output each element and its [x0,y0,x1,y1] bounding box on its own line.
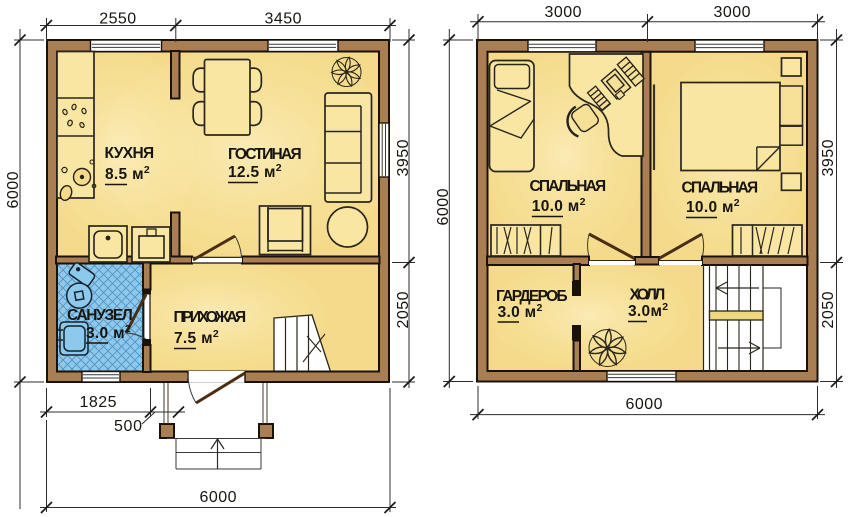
svg-text:500: 500 [114,418,142,435]
svg-text:3450: 3450 [265,11,302,28]
svg-text:6000: 6000 [5,171,22,208]
svg-text:ХОЛЛ: ХОЛЛ [630,287,666,304]
svg-text:СПАЛЬНАЯ: СПАЛЬНАЯ [530,178,607,195]
svg-text:7.5 м2: 7.5 м2 [174,328,219,347]
svg-text:САНУЗЕЛ: САНУЗЕЛ [67,307,133,324]
svg-text:2050: 2050 [820,291,837,328]
svg-text:10.0 м2: 10.0 м2 [532,196,586,215]
svg-text:3950: 3950 [820,139,837,176]
svg-text:10.0 м2: 10.0 м2 [686,197,740,216]
svg-text:ПРИХОЖАЯ: ПРИХОЖАЯ [174,309,247,326]
svg-text:3950: 3950 [395,139,412,176]
svg-text:3000: 3000 [714,4,751,21]
svg-text:СПАЛЬНАЯ: СПАЛЬНАЯ [682,180,759,197]
svg-text:2050: 2050 [395,291,412,328]
svg-text:8.5 м2: 8.5 м2 [105,164,150,183]
svg-text:6000: 6000 [200,489,237,506]
svg-text:3.0 м2: 3.0 м2 [86,323,131,342]
svg-text:3000: 3000 [545,4,582,21]
svg-text:12.5 м2: 12.5 м2 [228,162,282,181]
svg-text:1825: 1825 [80,394,117,411]
svg-text:ГОСТИНАЯ: ГОСТИНАЯ [228,146,302,163]
svg-text:ГАРДЕРОБ: ГАРДЕРОБ [496,288,568,305]
svg-text:6000: 6000 [435,188,452,225]
svg-text:3.0 м2: 3.0 м2 [498,302,543,321]
svg-text:6000: 6000 [626,396,663,413]
svg-text:КУХНЯ: КУХНЯ [105,145,155,162]
svg-text:2550: 2550 [99,11,136,28]
